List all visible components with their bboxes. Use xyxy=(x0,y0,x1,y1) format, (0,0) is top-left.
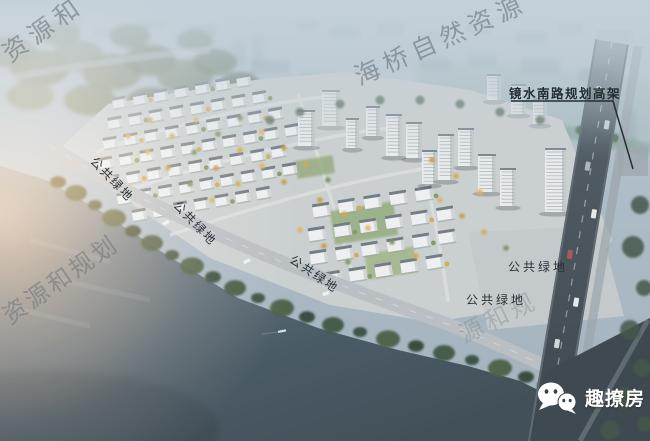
green-space-label: 公共绿地 xyxy=(508,258,568,275)
atmosphere-tint xyxy=(0,0,650,441)
publisher-name: 趣撩房 xyxy=(585,384,645,411)
elevated-road-label: 镜水南路规划高架 xyxy=(509,83,621,102)
scene-art xyxy=(0,0,650,441)
publisher-logo: 趣撩房 xyxy=(537,381,645,414)
green-space-label: 公共绿地 xyxy=(466,291,526,308)
aerial-development-render: 资源和 海桥自然资源 资源和规划 源和规 公共绿地 公共绿地 公共绿地 公共绿地… xyxy=(0,0,650,441)
wechat-icon xyxy=(537,381,578,414)
